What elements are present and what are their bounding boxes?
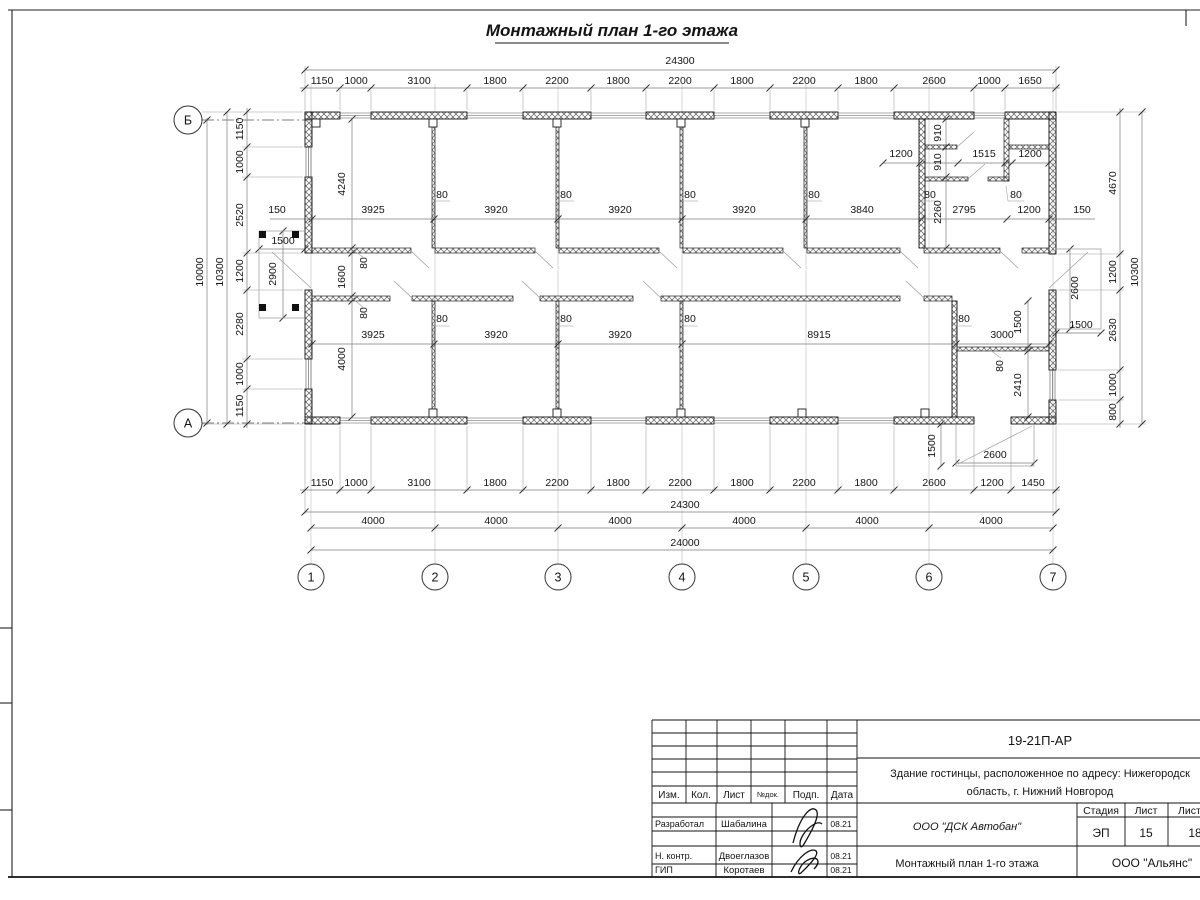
dim-label: 2600 [1069, 276, 1081, 300]
dim-label: 80 [358, 257, 370, 269]
dim-label: 80 [560, 189, 572, 201]
dim-label: 3100 [407, 75, 431, 87]
dim-label: 10300 [1129, 257, 1141, 286]
axis-number: 4 [679, 571, 686, 585]
dim-label: 1650 [1018, 75, 1042, 87]
dim-label: 4670 [1107, 171, 1119, 195]
object-name-line1: Здание гостинцы, расположенное по адресу… [890, 768, 1190, 780]
col-header-ndoc: №док. [757, 790, 779, 799]
plan-title: Монтажный план 1-го этажа [486, 21, 738, 40]
dim-label: 80 [684, 313, 696, 325]
dim-label: 2200 [792, 477, 816, 489]
dim-label: 1800 [730, 75, 754, 87]
axis-number: 3 [555, 571, 562, 585]
dim-label: 3920 [484, 329, 508, 341]
col-header-izm: Изм. [658, 790, 679, 801]
dim-label: 8915 [807, 329, 831, 341]
dim-label: 4000 [608, 515, 632, 527]
dim-label: 80 [560, 313, 572, 325]
dim-label: 1800 [606, 477, 630, 489]
dim-label: 3840 [850, 204, 874, 216]
axis-number: 2 [432, 571, 439, 585]
dim-label: 2280 [234, 312, 246, 336]
dim-label: 3100 [407, 477, 431, 489]
dim-label: 2200 [545, 75, 569, 87]
axis-number: 5 [803, 571, 810, 585]
dim-label: 2600 [922, 75, 946, 87]
axis-number: 7 [1050, 571, 1057, 585]
dim-label: 80 [358, 307, 370, 319]
dim-label: 80 [808, 189, 820, 201]
row-role: Н. контр. [655, 851, 692, 861]
dim-label: 3920 [608, 329, 632, 341]
dim-label: 80 [684, 189, 696, 201]
axis-number: 6 [926, 571, 933, 585]
dim-label: 80 [1010, 189, 1022, 201]
row-date: 08.21 [830, 865, 852, 875]
dim-label: 1500 [926, 434, 938, 458]
dim-label: 1150 [311, 75, 334, 87]
dim-label: 24300 [670, 499, 699, 511]
dim-label: 1800 [606, 75, 630, 87]
dim-label: 150 [268, 204, 286, 216]
dim-label: 2410 [1012, 373, 1024, 397]
axis-letter: А [184, 417, 193, 431]
axis-letter: Б [184, 114, 192, 128]
col-header-podp: Подп. [793, 790, 820, 801]
dim-label: 1800 [483, 477, 507, 489]
dim-label: 1500 [271, 235, 295, 247]
dim-label: 1000 [977, 75, 1001, 87]
dim-label: 2600 [922, 477, 946, 489]
dim-label: 1500 [1012, 310, 1024, 334]
dim-label: 1200 [234, 259, 246, 283]
dim-label: 1500 [1069, 319, 1093, 331]
organization-name: ООО "Альянс" [1112, 856, 1192, 870]
corridor-walls [312, 248, 1049, 301]
dim-label: 1150 [234, 118, 246, 141]
signature [793, 809, 822, 847]
dim-label: 1515 [972, 148, 996, 160]
dim-label: 1800 [483, 75, 507, 87]
dim-label: 3920 [732, 204, 756, 216]
row-date: 08.21 [830, 851, 852, 861]
dim-label: 800 [1107, 403, 1119, 421]
dim-label: 80 [436, 313, 448, 325]
dim-label: 1000 [234, 362, 246, 386]
dim-label: 1800 [854, 477, 878, 489]
dim-label: 1600 [336, 265, 348, 289]
porch-column [259, 231, 266, 238]
document-number: 19-21П-АР [1008, 733, 1072, 748]
dim-label: 24000 [670, 537, 699, 549]
signature [791, 850, 818, 874]
dim-label: 1150 [234, 395, 246, 418]
dim-label: 2630 [1107, 318, 1119, 342]
dim-label: 10300 [214, 257, 226, 286]
dim-label: 3920 [484, 204, 508, 216]
dim-label: 150 [1073, 204, 1091, 216]
dim-label: 2900 [267, 262, 279, 286]
sheets-label: Листов [1178, 805, 1200, 817]
floor-plan-sheet: Монтажный план 1-го этажа [0, 0, 1200, 900]
dim-label: 3925 [361, 204, 385, 216]
dim-label: 910 [932, 124, 944, 142]
col-header-data: Дата [831, 790, 854, 801]
pilasters [312, 119, 929, 417]
col-header-list: Лист [723, 790, 745, 801]
dim-label: 2260 [932, 200, 944, 224]
dim-label: 4000 [732, 515, 756, 527]
col-header-kol: Кол. [691, 790, 711, 801]
dim-label: 80 [994, 360, 1006, 372]
dim-label: 4000 [336, 347, 348, 371]
row-role: ГИП [655, 865, 673, 875]
dim-label: 1450 [1021, 477, 1045, 489]
stage-value: ЭП [1092, 826, 1109, 840]
drawing-name: Монтажный план 1-го этажа [895, 858, 1039, 870]
dim-label: 1200 [1017, 204, 1041, 216]
object-name-line2: область, г. Нижний Новгород [967, 786, 1114, 798]
dim-label: 1000 [1107, 373, 1119, 397]
dim-label: 1200 [889, 148, 913, 160]
row-role: Разработал [655, 819, 704, 829]
row-name: Двоеглазов [719, 851, 770, 862]
dim-label: 2520 [234, 203, 246, 227]
dim-label: 24300 [665, 55, 694, 67]
axis-number: 1 [308, 571, 315, 585]
row-name: Шабалина [721, 819, 768, 830]
dim-label: 80 [958, 313, 970, 325]
dim-label: 4000 [979, 515, 1003, 527]
dim-label: 80 [436, 189, 448, 201]
dim-label: 2600 [983, 449, 1007, 461]
dim-label: 2200 [668, 75, 692, 87]
sheet-label: Лист [1135, 805, 1158, 817]
dim-label: 2795 [952, 204, 976, 216]
title-block: Изм. Кол. Лист №док. Подп. Дата Разработ… [652, 720, 1200, 877]
dim-label: 2200 [545, 477, 569, 489]
dim-label: 10000 [194, 257, 206, 286]
sheet-title: Монтажный план 1-го этажа [486, 21, 738, 43]
dim-label: 80 [924, 189, 936, 201]
dim-label: 2200 [792, 75, 816, 87]
dim-label: 1000 [344, 75, 368, 87]
dim-label: 3000 [990, 329, 1014, 341]
porch-column [259, 304, 266, 311]
contractor-name: ООО "ДСК Автобан" [913, 821, 1022, 833]
dim-label: 4000 [361, 515, 385, 527]
sheets-value: 18 [1188, 826, 1200, 840]
porch-column [292, 304, 299, 311]
dim-label: 4240 [336, 172, 348, 196]
stage-label: Стадия [1083, 805, 1119, 817]
dim-label: 3920 [608, 204, 632, 216]
dim-label: 3925 [361, 329, 385, 341]
dim-label: 910 [932, 153, 944, 171]
row-date: 08.21 [830, 819, 852, 829]
dim-label: 4000 [855, 515, 879, 527]
partition-walls [432, 119, 1049, 417]
dim-label: 1150 [311, 477, 334, 489]
dim-label: 1200 [1107, 260, 1119, 284]
dim-label: 2200 [668, 477, 692, 489]
dim-labels: 24300 1150 1000 3100 1800 2200 1800 2200… [194, 55, 1141, 549]
dim-label: 1800 [854, 75, 878, 87]
dim-label: 4000 [484, 515, 508, 527]
dim-label: 1200 [980, 477, 1004, 489]
dim-label: 1000 [234, 150, 246, 174]
dim-label: 1800 [730, 477, 754, 489]
dim-label: 1000 [344, 477, 368, 489]
dim-label: 1200 [1018, 148, 1042, 160]
row-name: Коротаев [723, 865, 764, 876]
sheet-value: 15 [1139, 826, 1153, 840]
